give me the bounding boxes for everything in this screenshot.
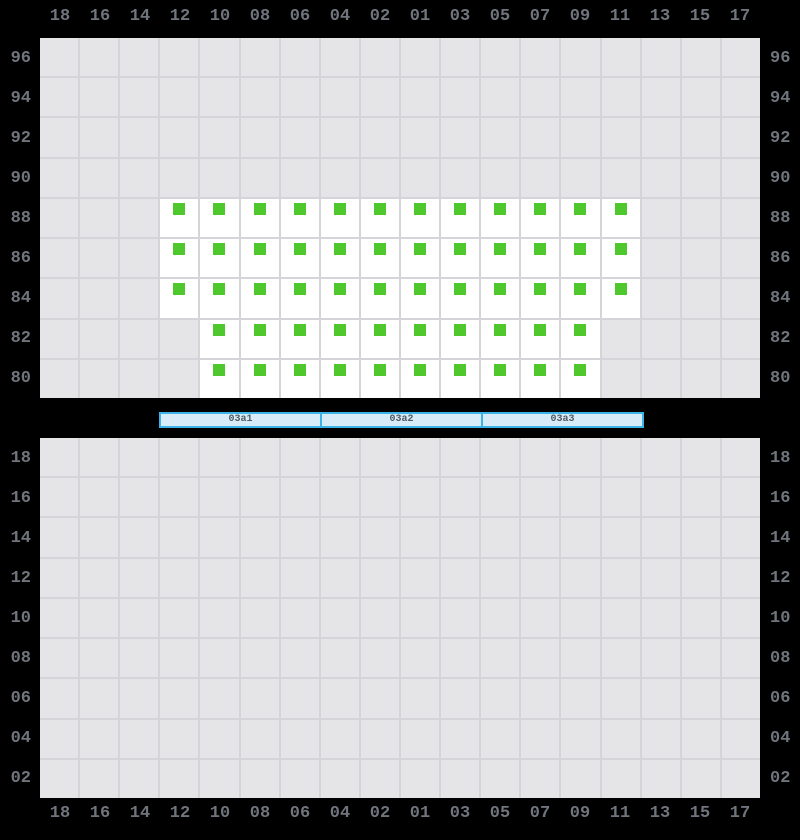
- row-label: 90: [764, 158, 800, 198]
- grid-cell: [281, 679, 319, 717]
- seat-cell[interactable]: [602, 199, 640, 237]
- section-segment: 03a1: [161, 414, 320, 426]
- seat-cell[interactable]: [602, 279, 640, 317]
- row-label: 18: [0, 438, 36, 478]
- grid-cell: [200, 720, 238, 758]
- row-label: 16: [0, 478, 36, 518]
- seat-cell[interactable]: [401, 199, 439, 237]
- grid-cell: [602, 320, 640, 358]
- grid-cell: [682, 760, 720, 798]
- grid-cell: [722, 599, 760, 637]
- grid-cell: [441, 760, 479, 798]
- grid-cell: [321, 599, 359, 637]
- grid-cell: [561, 438, 599, 476]
- grid-cell: [120, 239, 158, 277]
- grid-cell: [321, 760, 359, 798]
- column-label: 14: [120, 0, 160, 33]
- grid-cell: [160, 760, 198, 798]
- grid-cell: [602, 159, 640, 197]
- grid-cell: [80, 78, 118, 116]
- grid-cell: [602, 559, 640, 597]
- seat-cell[interactable]: [521, 320, 559, 358]
- grid-cell: [200, 679, 238, 717]
- seat-cell[interactable]: [441, 320, 479, 358]
- grid-cell: [602, 478, 640, 516]
- grid-cell: [521, 639, 559, 677]
- row-label: 06: [764, 678, 800, 718]
- grid-cell: [602, 760, 640, 798]
- grid-cell: [361, 38, 399, 76]
- column-label: 08: [240, 0, 280, 33]
- grid-cell: [80, 239, 118, 277]
- seat-cell[interactable]: [521, 279, 559, 317]
- grid-cell: [561, 599, 599, 637]
- column-label: 10: [200, 799, 240, 827]
- grid-cell: [120, 320, 158, 358]
- grid-cell: [682, 599, 720, 637]
- row-label: 92: [764, 118, 800, 158]
- lower-seat-panel: [40, 438, 760, 798]
- grid-cell: [200, 38, 238, 76]
- grid-cell: [361, 78, 399, 116]
- seat-cell[interactable]: [361, 320, 399, 358]
- grid-cell: [40, 159, 78, 197]
- seat-cell[interactable]: [321, 279, 359, 317]
- grid-cell: [481, 679, 519, 717]
- grid-cell: [521, 159, 559, 197]
- seat-cell[interactable]: [401, 239, 439, 277]
- grid-cell: [602, 518, 640, 556]
- row-label: 04: [0, 718, 36, 758]
- grid-cell: [80, 159, 118, 197]
- grid-cell: [160, 559, 198, 597]
- grid-cell: [361, 518, 399, 556]
- grid-cell: [120, 38, 158, 76]
- seat-cell[interactable]: [441, 360, 479, 398]
- grid-cell: [321, 438, 359, 476]
- grid-cell: [281, 599, 319, 637]
- grid-cell: [481, 78, 519, 116]
- column-label: 09: [560, 799, 600, 827]
- grid-cell: [80, 360, 118, 398]
- grid-cell: [642, 199, 680, 237]
- seat-cell[interactable]: [281, 360, 319, 398]
- grid-cell: [401, 438, 439, 476]
- grid-cell: [602, 438, 640, 476]
- grid-cell: [160, 720, 198, 758]
- grid-cell: [682, 239, 720, 277]
- seat-cell[interactable]: [281, 239, 319, 277]
- grid-cell: [481, 599, 519, 637]
- grid-cell: [521, 478, 559, 516]
- grid-cell: [40, 679, 78, 717]
- grid-cell: [642, 78, 680, 116]
- row-label: 82: [764, 318, 800, 358]
- row-label: 14: [0, 518, 36, 558]
- row-label: 06: [0, 678, 36, 718]
- column-label: 02: [360, 0, 400, 33]
- seat-cell[interactable]: [521, 360, 559, 398]
- grid-cell: [602, 118, 640, 156]
- seat-cell[interactable]: [160, 199, 198, 237]
- row-label: 10: [0, 598, 36, 638]
- grid-cell: [80, 639, 118, 677]
- column-label: 12: [160, 0, 200, 33]
- column-label: 08: [240, 799, 280, 827]
- grid-cell: [80, 279, 118, 317]
- row-label: 86: [764, 238, 800, 278]
- row-label: 02: [0, 758, 36, 798]
- seat-cell[interactable]: [160, 239, 198, 277]
- grid-cell: [281, 518, 319, 556]
- grid-cell: [40, 720, 78, 758]
- grid-cell: [40, 639, 78, 677]
- grid-cell: [481, 639, 519, 677]
- seat-cell[interactable]: [441, 199, 479, 237]
- grid-cell: [602, 360, 640, 398]
- column-label: 05: [480, 0, 520, 33]
- column-label: 06: [280, 799, 320, 827]
- grid-cell: [521, 518, 559, 556]
- column-label: 05: [480, 799, 520, 827]
- grid-cell: [80, 118, 118, 156]
- row-label: 86: [0, 238, 36, 278]
- grid-cell: [321, 78, 359, 116]
- column-label: 04: [320, 0, 360, 33]
- grid-cell: [361, 639, 399, 677]
- grid-cell: [40, 279, 78, 317]
- grid-cell: [481, 720, 519, 758]
- grid-cell: [722, 478, 760, 516]
- seat-cell[interactable]: [561, 320, 599, 358]
- row-label: 82: [0, 318, 36, 358]
- seat-cell[interactable]: [321, 199, 359, 237]
- seat-map-screen: 181614121008060402010305070911131517 969…: [0, 0, 800, 840]
- row-label: 84: [0, 278, 36, 318]
- grid-cell: [160, 438, 198, 476]
- grid-cell: [281, 639, 319, 677]
- grid-cell: [682, 559, 720, 597]
- seat-cell[interactable]: [481, 360, 519, 398]
- seat-cell[interactable]: [521, 239, 559, 277]
- seat-cell[interactable]: [561, 360, 599, 398]
- grid-cell: [401, 679, 439, 717]
- grid-cell: [682, 679, 720, 717]
- grid-cell: [321, 679, 359, 717]
- grid-cell: [642, 559, 680, 597]
- grid-cell: [120, 78, 158, 116]
- grid-cell: [441, 118, 479, 156]
- grid-cell: [561, 478, 599, 516]
- column-label: 03: [440, 799, 480, 827]
- grid-cell: [561, 679, 599, 717]
- grid-cell: [120, 679, 158, 717]
- column-label: 01: [400, 799, 440, 827]
- grid-cell: [120, 639, 158, 677]
- grid-cell: [441, 639, 479, 677]
- grid-cell: [40, 78, 78, 116]
- grid-cell: [441, 559, 479, 597]
- row-label: 96: [764, 38, 800, 78]
- grid-cell: [401, 159, 439, 197]
- grid-cell: [481, 760, 519, 798]
- row-label: 02: [764, 758, 800, 798]
- seat-cell[interactable]: [481, 320, 519, 358]
- grid-cell: [120, 599, 158, 637]
- column-label: 03: [440, 0, 480, 33]
- seat-cell[interactable]: [561, 279, 599, 317]
- seat-cell[interactable]: [241, 239, 279, 277]
- grid-cell: [40, 760, 78, 798]
- seat-cell[interactable]: [200, 279, 238, 317]
- grid-cell: [40, 559, 78, 597]
- seat-cell[interactable]: [361, 239, 399, 277]
- column-label: 09: [560, 0, 600, 33]
- grid-cell: [241, 599, 279, 637]
- grid-cell: [241, 478, 279, 516]
- seat-cell[interactable]: [361, 360, 399, 398]
- grid-cell: [682, 279, 720, 317]
- grid-cell: [682, 518, 720, 556]
- grid-cell: [241, 720, 279, 758]
- grid-cell: [321, 720, 359, 758]
- grid-cell: [281, 720, 319, 758]
- grid-cell: [361, 760, 399, 798]
- grid-cell: [120, 720, 158, 758]
- seat-cell[interactable]: [281, 320, 319, 358]
- grid-cell: [602, 38, 640, 76]
- seat-cell[interactable]: [481, 199, 519, 237]
- seat-cell[interactable]: [481, 239, 519, 277]
- seat-cell[interactable]: [401, 279, 439, 317]
- seat-cell[interactable]: [321, 320, 359, 358]
- section-bar: 03a1 03a2 03a3: [159, 412, 644, 428]
- grid-cell: [682, 78, 720, 116]
- row-label: 08: [764, 638, 800, 678]
- grid-cell: [602, 720, 640, 758]
- grid-cell: [481, 478, 519, 516]
- grid-cell: [160, 518, 198, 556]
- grid-cell: [241, 760, 279, 798]
- seat-cell[interactable]: [321, 360, 359, 398]
- lower-left-row-labels: 181614121008060402: [0, 438, 36, 798]
- seat-cell[interactable]: [602, 239, 640, 277]
- grid-cell: [321, 478, 359, 516]
- grid-cell: [682, 38, 720, 76]
- grid-cell: [682, 118, 720, 156]
- grid-cell: [160, 478, 198, 516]
- seat-cell[interactable]: [361, 199, 399, 237]
- grid-cell: [602, 599, 640, 637]
- grid-cell: [40, 118, 78, 156]
- seat-cell[interactable]: [200, 360, 238, 398]
- grid-cell: [481, 438, 519, 476]
- row-label: 92: [0, 118, 36, 158]
- column-label: 11: [600, 799, 640, 827]
- grid-cell: [642, 599, 680, 637]
- grid-cell: [722, 279, 760, 317]
- grid-cell: [642, 360, 680, 398]
- grid-cell: [321, 639, 359, 677]
- grid-cell: [40, 518, 78, 556]
- grid-cell: [481, 159, 519, 197]
- grid-cell: [441, 38, 479, 76]
- grid-cell: [521, 760, 559, 798]
- seat-cell[interactable]: [241, 360, 279, 398]
- grid-cell: [722, 38, 760, 76]
- grid-cell: [160, 78, 198, 116]
- seat-cell[interactable]: [241, 320, 279, 358]
- section-segment: 03a2: [322, 414, 481, 426]
- grid-cell: [281, 438, 319, 476]
- grid-cell: [80, 518, 118, 556]
- grid-cell: [361, 720, 399, 758]
- grid-cell: [561, 159, 599, 197]
- grid-cell: [642, 239, 680, 277]
- grid-cell: [241, 38, 279, 76]
- column-label: 18: [40, 0, 80, 33]
- grid-cell: [241, 639, 279, 677]
- grid-cell: [722, 760, 760, 798]
- grid-cell: [521, 720, 559, 758]
- grid-cell: [602, 679, 640, 717]
- row-label: 12: [0, 558, 36, 598]
- grid-cell: [361, 559, 399, 597]
- grid-cell: [160, 599, 198, 637]
- grid-cell: [361, 599, 399, 637]
- grid-cell: [40, 320, 78, 358]
- seat-cell[interactable]: [200, 239, 238, 277]
- grid-cell: [642, 720, 680, 758]
- column-label: 16: [80, 799, 120, 827]
- seat-cell[interactable]: [200, 199, 238, 237]
- seat-cell[interactable]: [521, 199, 559, 237]
- grid-cell: [561, 518, 599, 556]
- grid-cell: [200, 78, 238, 116]
- grid-cell: [401, 78, 439, 116]
- seat-cell[interactable]: [481, 279, 519, 317]
- row-label: 94: [764, 78, 800, 118]
- column-label: 04: [320, 799, 360, 827]
- grid-cell: [200, 159, 238, 197]
- grid-cell: [200, 478, 238, 516]
- seat-cell[interactable]: [241, 199, 279, 237]
- grid-cell: [80, 679, 118, 717]
- grid-cell: [642, 159, 680, 197]
- grid-cell: [682, 159, 720, 197]
- grid-cell: [441, 720, 479, 758]
- seat-cell[interactable]: [160, 279, 198, 317]
- column-label: 14: [120, 799, 160, 827]
- grid-cell: [80, 320, 118, 358]
- row-label: 14: [764, 518, 800, 558]
- column-label: 11: [600, 0, 640, 33]
- grid-cell: [722, 720, 760, 758]
- grid-cell: [602, 639, 640, 677]
- grid-cell: [682, 438, 720, 476]
- column-label: 06: [280, 0, 320, 33]
- row-label: 80: [764, 358, 800, 398]
- seat-cell[interactable]: [441, 279, 479, 317]
- grid-cell: [521, 38, 559, 76]
- grid-cell: [40, 239, 78, 277]
- row-label: 16: [764, 478, 800, 518]
- grid-cell: [281, 559, 319, 597]
- grid-cell: [40, 199, 78, 237]
- grid-cell: [481, 559, 519, 597]
- grid-cell: [241, 679, 279, 717]
- grid-cell: [281, 478, 319, 516]
- top-column-labels: 181614121008060402010305070911131517: [40, 0, 760, 33]
- grid-cell: [361, 438, 399, 476]
- seat-cell[interactable]: [401, 320, 439, 358]
- column-label: 07: [520, 799, 560, 827]
- grid-cell: [241, 518, 279, 556]
- grid-cell: [80, 559, 118, 597]
- grid-cell: [441, 438, 479, 476]
- grid-cell: [441, 478, 479, 516]
- seat-cell[interactable]: [401, 360, 439, 398]
- grid-cell: [281, 38, 319, 76]
- grid-cell: [481, 518, 519, 556]
- grid-cell: [481, 38, 519, 76]
- grid-cell: [441, 78, 479, 116]
- lower-right-row-labels: 181614121008060402: [764, 438, 800, 798]
- grid-cell: [40, 360, 78, 398]
- grid-cell: [200, 118, 238, 156]
- column-label: 13: [640, 0, 680, 33]
- row-label: 04: [764, 718, 800, 758]
- grid-cell: [200, 599, 238, 637]
- column-label: 10: [200, 0, 240, 33]
- row-label: 88: [764, 198, 800, 238]
- grid-cell: [120, 760, 158, 798]
- grid-cell: [642, 38, 680, 76]
- grid-cell: [80, 599, 118, 637]
- grid-cell: [521, 679, 559, 717]
- grid-cell: [80, 38, 118, 76]
- grid-cell: [80, 438, 118, 476]
- grid-cell: [642, 478, 680, 516]
- grid-cell: [722, 639, 760, 677]
- row-label: 10: [764, 598, 800, 638]
- seat-cell[interactable]: [321, 239, 359, 277]
- row-label: 84: [764, 278, 800, 318]
- grid-cell: [241, 559, 279, 597]
- seat-cell[interactable]: [200, 320, 238, 358]
- grid-cell: [160, 118, 198, 156]
- grid-cell: [241, 438, 279, 476]
- seat-cell[interactable]: [561, 239, 599, 277]
- seat-cell[interactable]: [241, 279, 279, 317]
- grid-cell: [160, 639, 198, 677]
- grid-cell: [40, 599, 78, 637]
- seat-cell[interactable]: [281, 199, 319, 237]
- grid-cell: [521, 78, 559, 116]
- grid-cell: [481, 118, 519, 156]
- column-label: 18: [40, 799, 80, 827]
- grid-cell: [40, 478, 78, 516]
- grid-cell: [40, 38, 78, 76]
- row-label: 90: [0, 158, 36, 198]
- seat-cell[interactable]: [561, 199, 599, 237]
- grid-cell: [200, 760, 238, 798]
- seat-cell[interactable]: [361, 279, 399, 317]
- grid-cell: [160, 679, 198, 717]
- row-label: 80: [0, 358, 36, 398]
- seat-cell[interactable]: [441, 239, 479, 277]
- seat-cell[interactable]: [281, 279, 319, 317]
